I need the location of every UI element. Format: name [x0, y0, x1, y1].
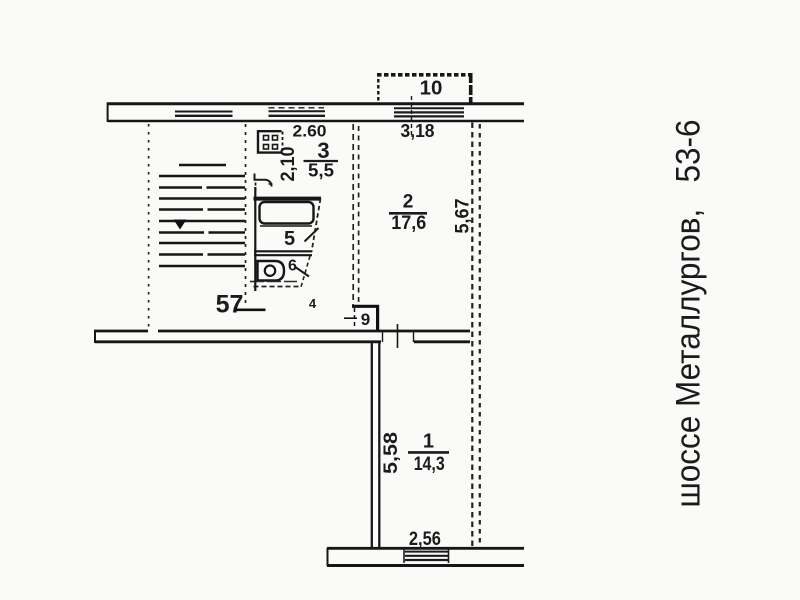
svg-text:17,6: 17,6	[391, 213, 426, 234]
svg-text:шоссе Металлургов, 53-6: шоссе Металлургов, 53-6	[670, 120, 708, 508]
svg-text:2: 2	[403, 192, 414, 213]
svg-text:4: 4	[309, 296, 317, 311]
svg-text:5,58: 5,58	[381, 432, 402, 474]
svg-text:9: 9	[361, 310, 370, 329]
svg-text:3,18: 3,18	[401, 121, 435, 141]
svg-text:2,56: 2,56	[409, 529, 441, 550]
svg-text:57: 57	[216, 291, 244, 319]
svg-text:5,67: 5,67	[453, 199, 474, 234]
svg-text:1: 1	[423, 431, 434, 453]
svg-text:3: 3	[317, 138, 329, 163]
svg-text:10: 10	[420, 77, 443, 100]
svg-text:2,10: 2,10	[277, 146, 299, 181]
svg-text:14,3: 14,3	[414, 454, 445, 475]
svg-text:6: 6	[288, 258, 297, 275]
svg-text:5: 5	[284, 228, 295, 250]
svg-text:5,5: 5,5	[308, 161, 334, 181]
